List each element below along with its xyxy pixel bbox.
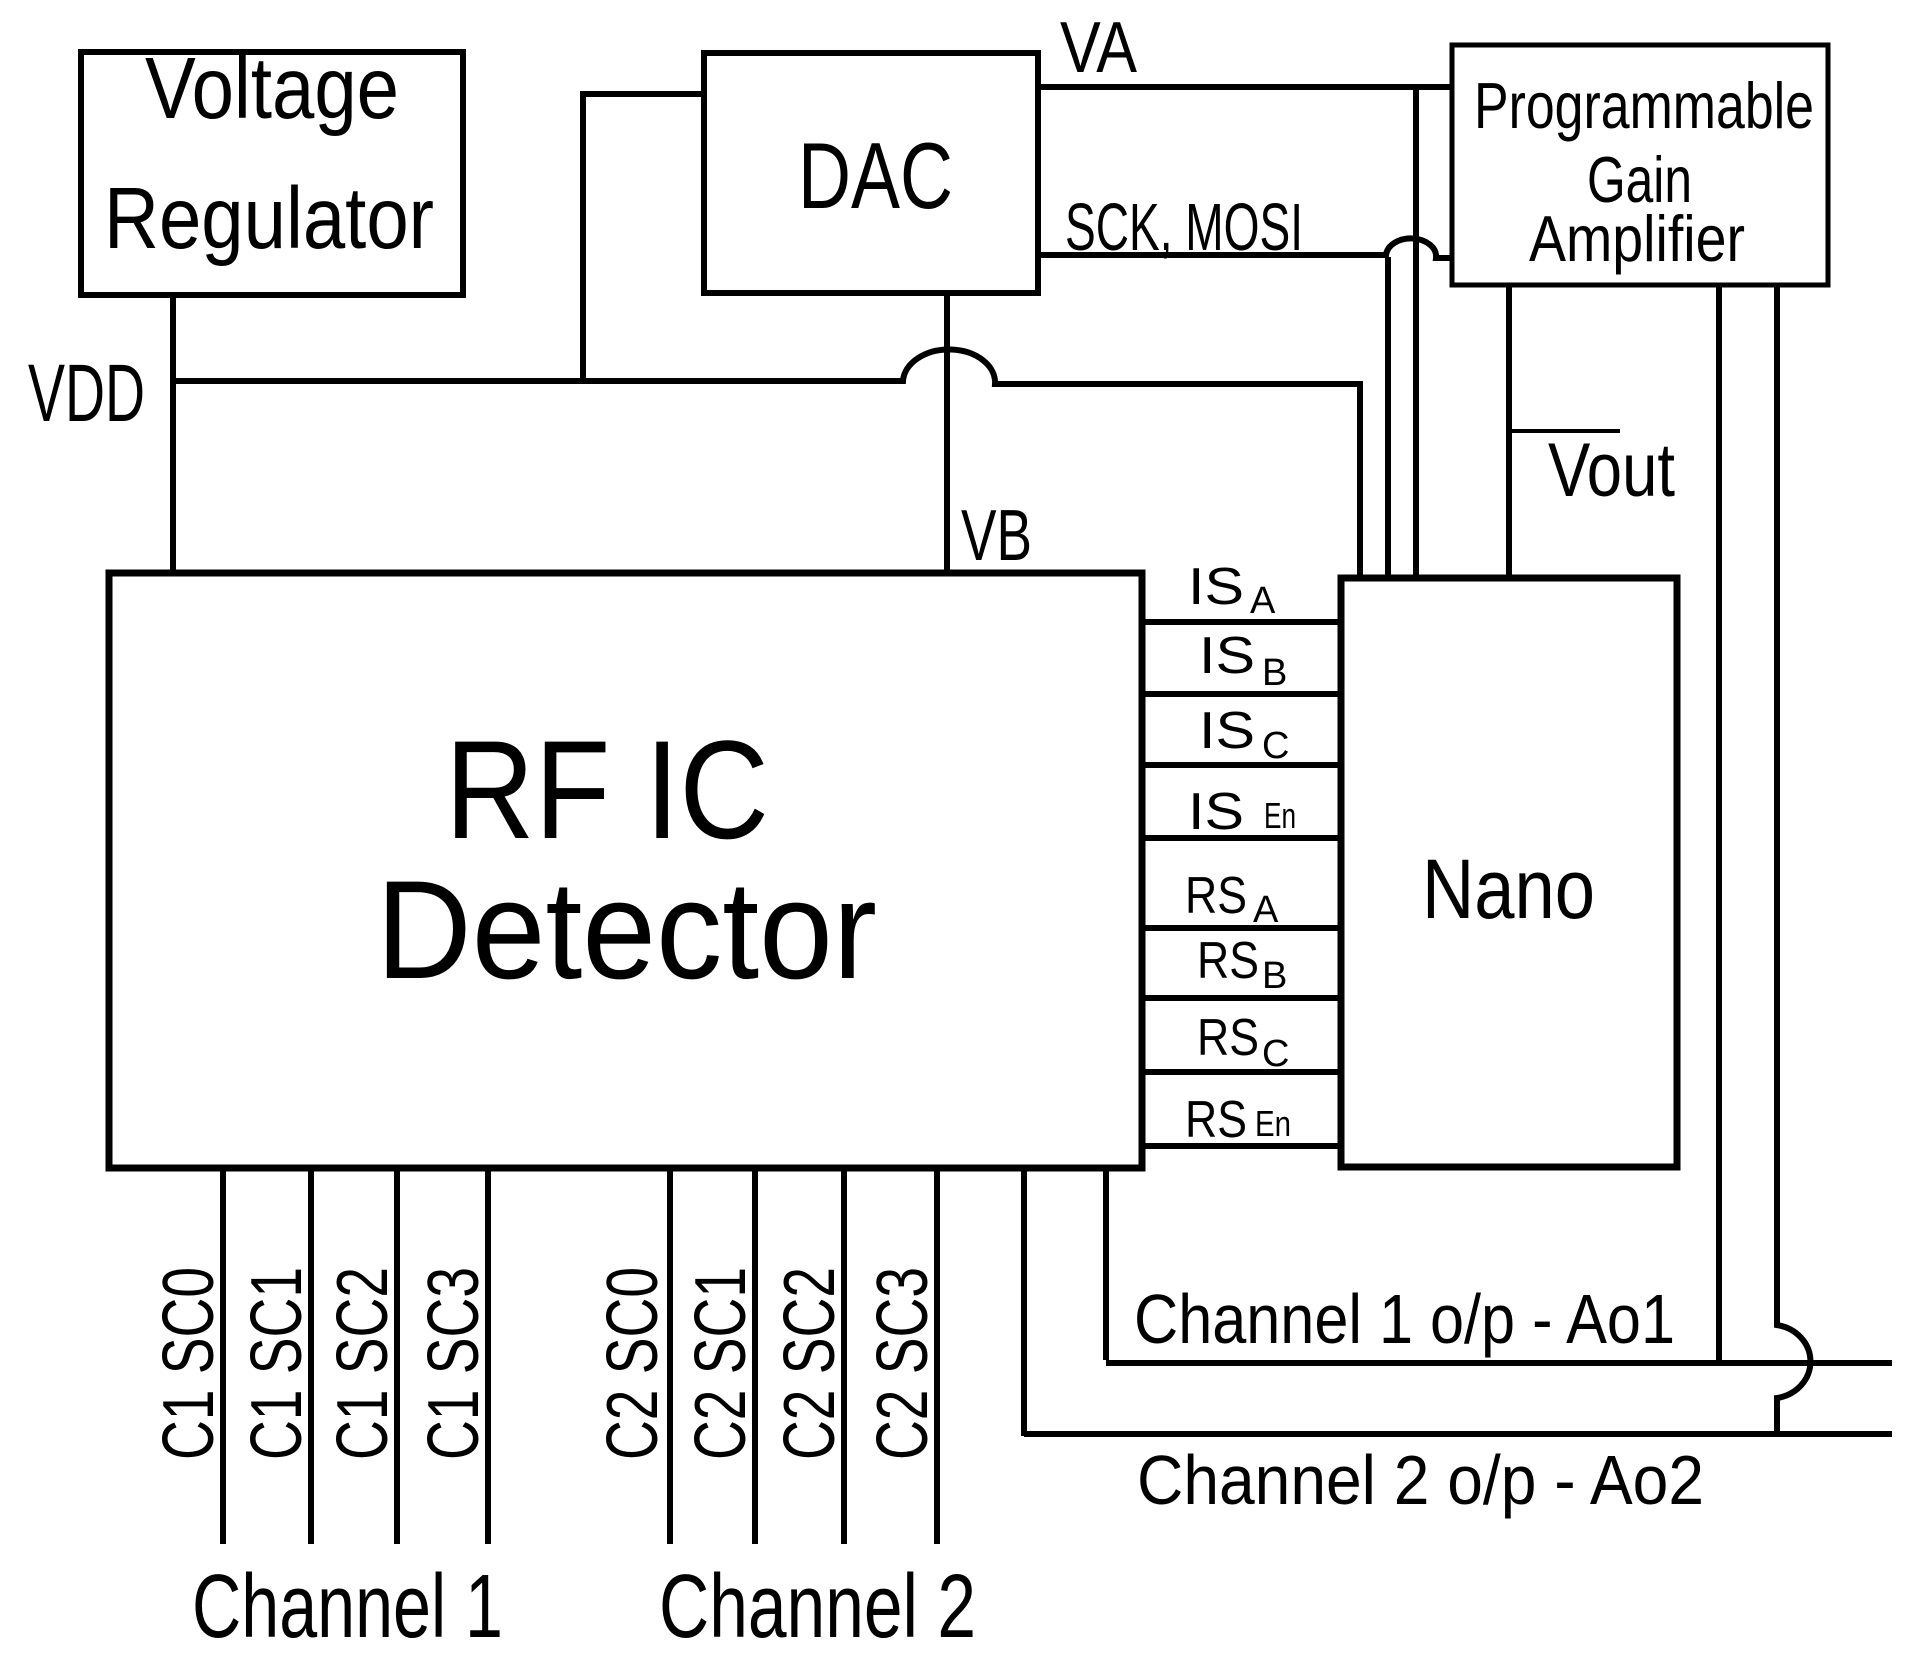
svg-text:SCK, MOSI: SCK, MOSI bbox=[1065, 190, 1303, 265]
svg-text:C1 SC2: C1 SC2 bbox=[323, 1267, 403, 1460]
svg-text:Voltage: Voltage bbox=[145, 40, 399, 137]
svg-text:IS: IS bbox=[1188, 558, 1244, 616]
svg-text:C2 SC2: C2 SC2 bbox=[770, 1267, 850, 1460]
svg-text:A: A bbox=[1250, 580, 1276, 622]
svg-text:VB: VB bbox=[961, 496, 1032, 576]
svg-text:VDD: VDD bbox=[28, 348, 145, 439]
svg-text:C1 SC3: C1 SC3 bbox=[414, 1267, 494, 1460]
svg-text:Nano: Nano bbox=[1422, 842, 1595, 936]
svg-text:RF IC: RF IC bbox=[445, 711, 769, 868]
svg-text:IS: IS bbox=[1188, 783, 1244, 841]
svg-text:Programmable: Programmable bbox=[1474, 69, 1814, 142]
svg-text:Amplifier: Amplifier bbox=[1529, 202, 1745, 275]
svg-text:Regulator: Regulator bbox=[104, 170, 434, 267]
svg-text:IS: IS bbox=[1199, 627, 1255, 685]
svg-text:RS: RS bbox=[1185, 867, 1247, 925]
svg-text:C1 SC0: C1 SC0 bbox=[149, 1267, 229, 1460]
svg-text:En: En bbox=[1264, 795, 1296, 836]
svg-text:C2 SC0: C2 SC0 bbox=[593, 1267, 673, 1460]
svg-text:C: C bbox=[1262, 1033, 1289, 1075]
svg-text:Channel 1 o/p - Ao1: Channel 1 o/p - Ao1 bbox=[1134, 1280, 1675, 1358]
svg-text:C: C bbox=[1262, 725, 1289, 767]
svg-text:RS: RS bbox=[1185, 1091, 1247, 1149]
svg-text:DAC: DAC bbox=[798, 123, 953, 228]
svg-text:Channel 2 o/p - Ao2: Channel 2 o/p - Ao2 bbox=[1137, 1441, 1704, 1519]
svg-text:RS: RS bbox=[1197, 932, 1259, 990]
svg-text:RS: RS bbox=[1197, 1009, 1259, 1067]
svg-text:C2 SC3: C2 SC3 bbox=[863, 1267, 943, 1460]
svg-text:Channel 2: Channel 2 bbox=[659, 1557, 976, 1657]
svg-text:Channel 1: Channel 1 bbox=[192, 1557, 503, 1657]
svg-text:IS: IS bbox=[1199, 702, 1255, 760]
svg-text:B: B bbox=[1262, 955, 1287, 997]
svg-text:C1 SC1: C1 SC1 bbox=[237, 1267, 317, 1460]
svg-text:Detector: Detector bbox=[376, 851, 877, 1008]
svg-text:En: En bbox=[1255, 1103, 1291, 1144]
svg-text:A: A bbox=[1253, 889, 1279, 931]
svg-text:C2 SC1: C2 SC1 bbox=[681, 1267, 761, 1460]
svg-text:B: B bbox=[1262, 652, 1287, 694]
svg-text:Vout: Vout bbox=[1548, 428, 1675, 513]
svg-text:VA: VA bbox=[1060, 8, 1137, 88]
